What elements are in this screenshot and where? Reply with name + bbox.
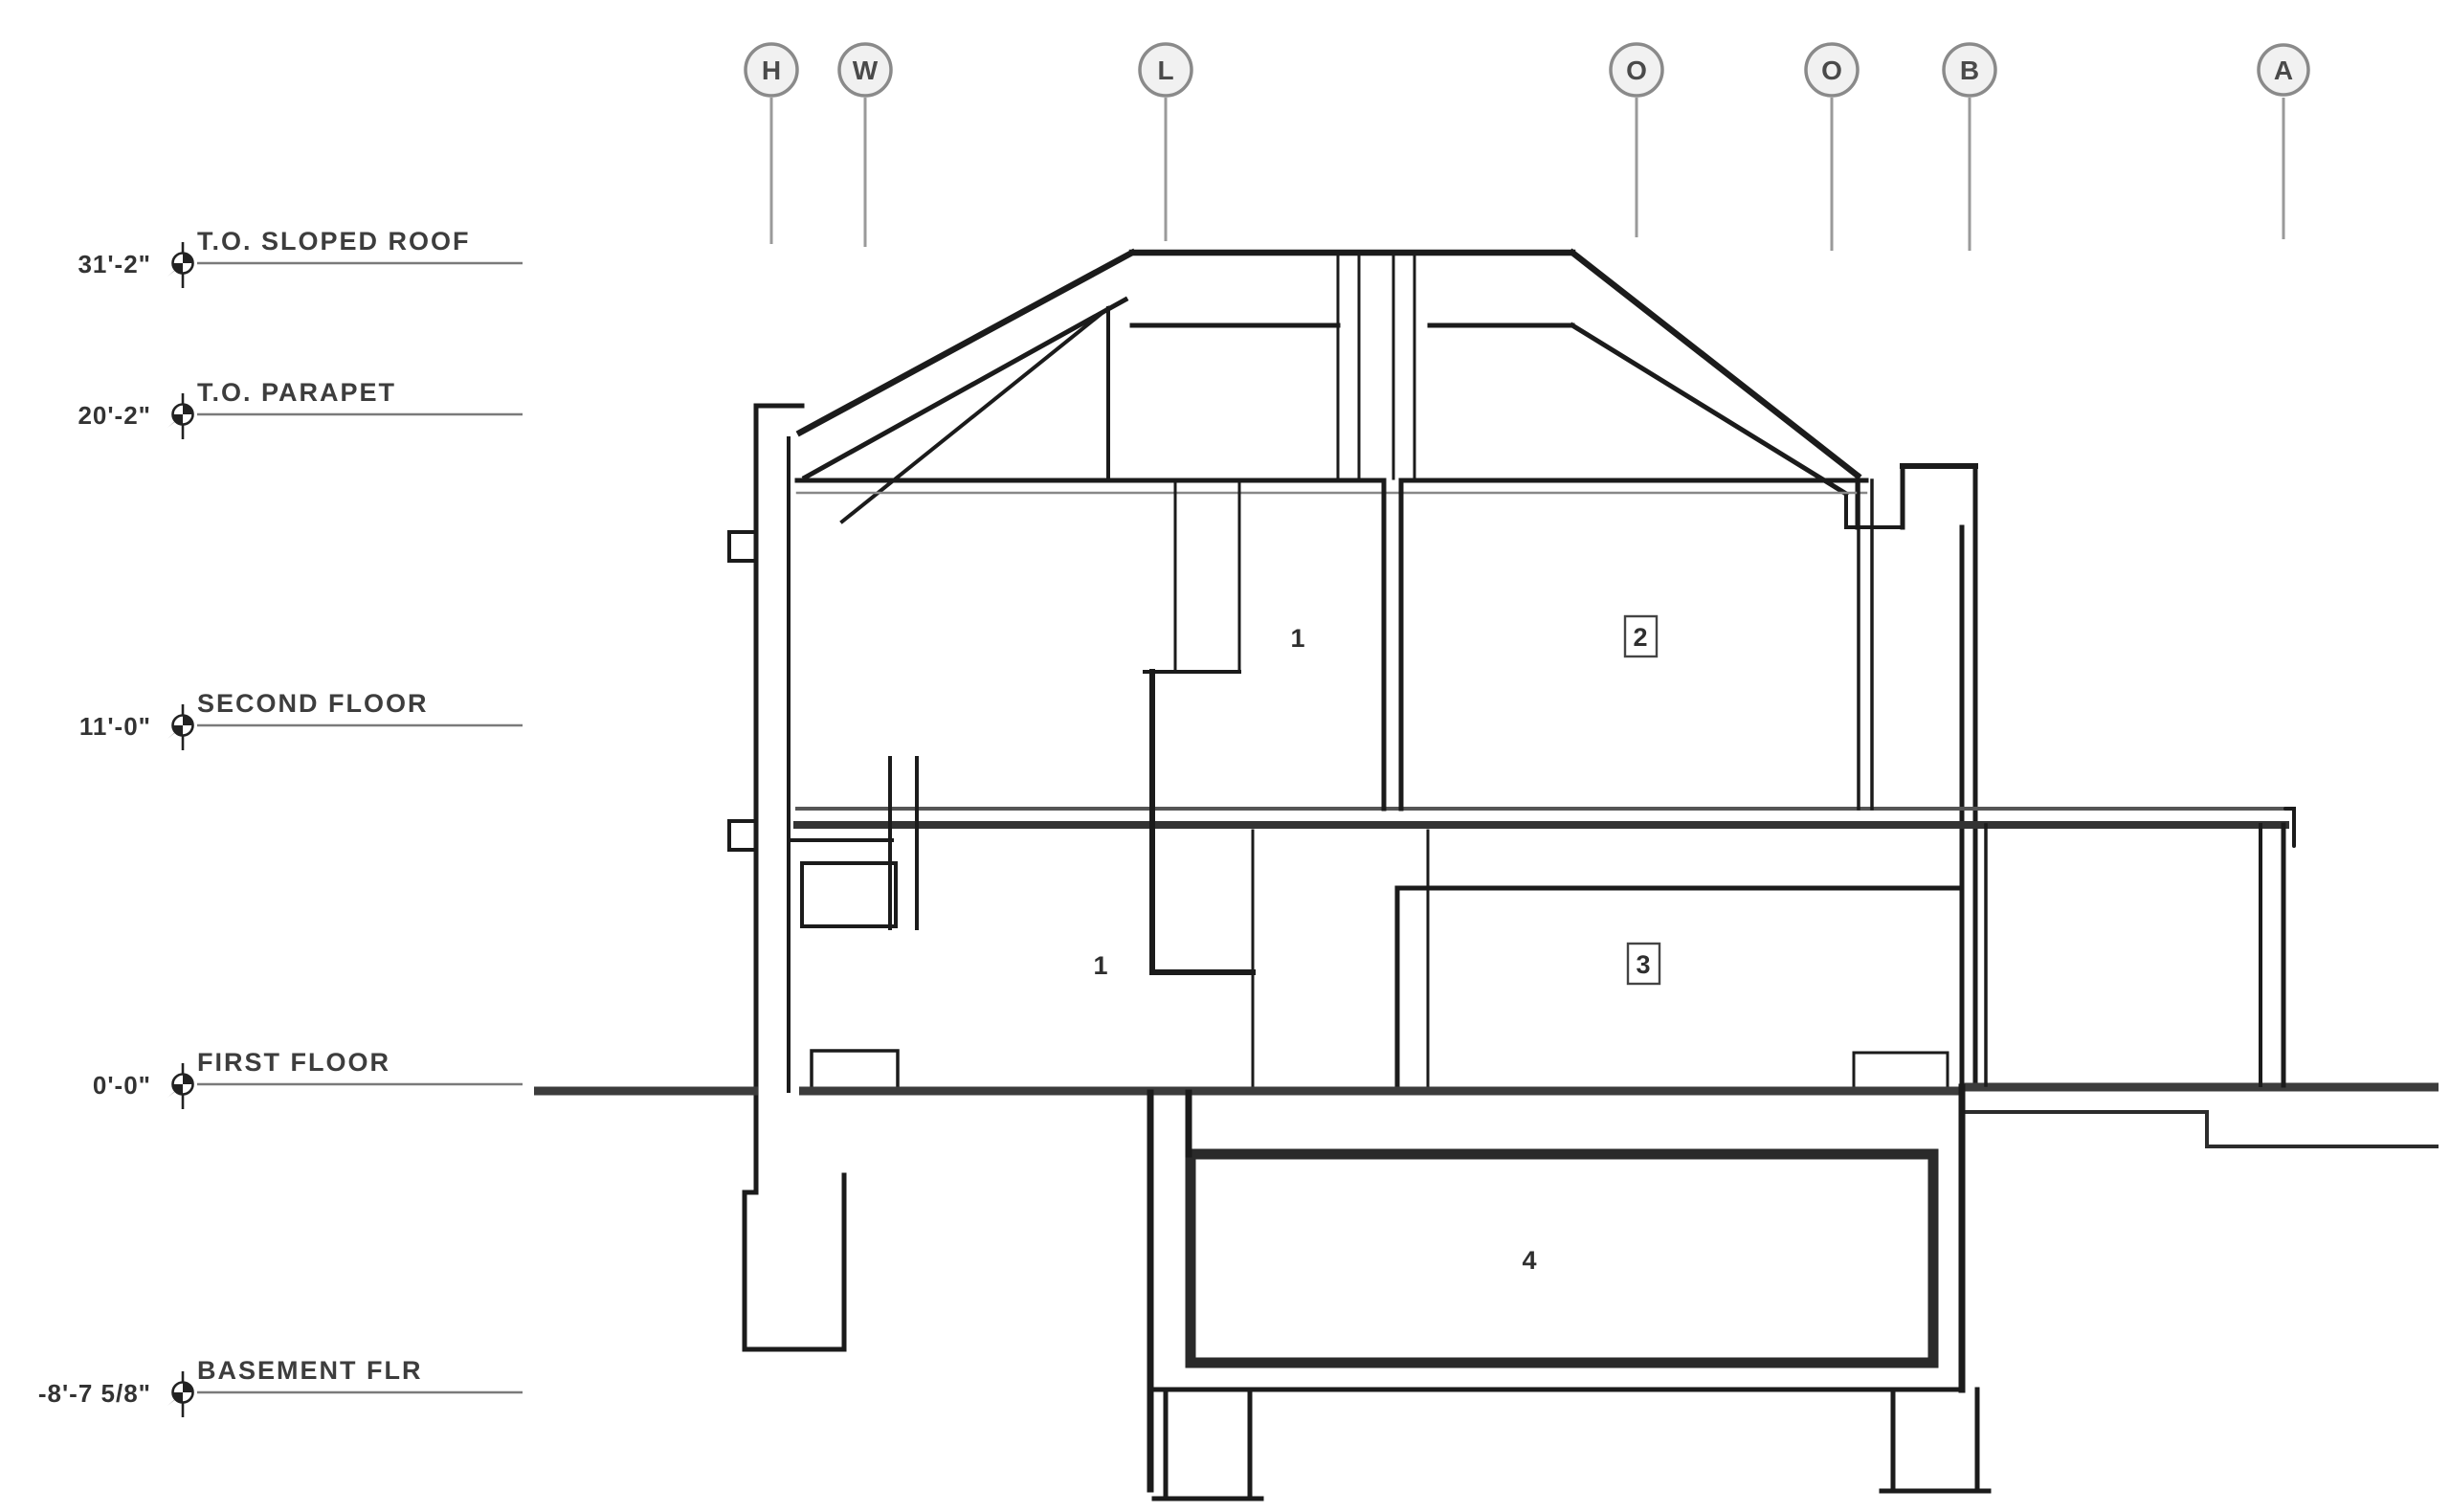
elevation-label: SECOND FLOOR	[197, 689, 429, 718]
floor-step	[1854, 1053, 1948, 1089]
footing-right	[1882, 1390, 1989, 1491]
room-divider-wall	[1384, 480, 1401, 809]
second-floor-band	[797, 809, 2294, 846]
room-tag-basement: 4	[1522, 1246, 1536, 1275]
svg-text:3: 3	[1636, 950, 1650, 979]
grid-bubble-label: B	[1960, 56, 1979, 85]
elevation-marker-second-floor: SECOND FLOOR 11'-0"	[79, 689, 523, 750]
grid-bubble-7: A	[2259, 45, 2308, 239]
stair-landing-box	[802, 863, 896, 926]
grid-bubble-label: O	[1626, 56, 1647, 85]
section-drawing-svg: H W L O O B A	[0, 0, 2450, 1512]
elevation-label: T.O. PARAPET	[197, 378, 396, 407]
footing-left	[1154, 1390, 1261, 1499]
elevation-label: FIRST FLOOR	[197, 1048, 390, 1077]
grade-and-slab	[534, 1087, 2439, 1146]
elevation-datum-icon	[167, 1371, 193, 1417]
left-exterior-wall	[729, 406, 844, 1349]
elevation-value: -8'-7 5/8"	[38, 1379, 151, 1408]
elevation-datum-icon	[167, 242, 193, 288]
elevation-marker-roof: T.O. SLOPED ROOF 31'-2"	[78, 227, 523, 288]
elevation-marker-parapet: T.O. PARAPET 20'-2"	[78, 378, 523, 439]
wall-ledge-lower	[729, 821, 756, 850]
elevation-value: 11'-0"	[79, 712, 151, 741]
roof	[800, 253, 1903, 527]
right-roof-slope	[1572, 253, 1858, 476]
elevation-value: 31'-2"	[78, 250, 151, 278]
right-foundation-line	[1964, 1112, 2439, 1146]
left-roof-slope	[800, 253, 1132, 433]
grid-bubble-label: O	[1821, 56, 1842, 85]
basement	[1150, 1087, 1989, 1499]
elevation-value: 20'-2"	[78, 401, 151, 430]
room-tags: 1 2 1 3 4	[1093, 616, 1659, 1275]
elevation-datum-icon	[167, 704, 193, 750]
grid-bubble-1: H	[746, 44, 797, 244]
right-parapet-and-wall	[1903, 466, 1975, 1087]
elevation-marker-first-floor: FIRST FLOOR 0'-0"	[93, 1048, 523, 1109]
architectural-section-sheet: H W L O O B A	[0, 0, 2450, 1512]
basement-room-walls	[1191, 1154, 1933, 1363]
grid-bubble-4: O	[1611, 44, 1662, 237]
building-section	[534, 253, 2439, 1499]
left-wall-footing	[745, 1175, 844, 1349]
grid-bubble-label: W	[853, 56, 879, 85]
second-floor-ceiling	[797, 480, 1866, 493]
grid-bubble-6: B	[1944, 44, 1995, 251]
upper-right-wall-face	[1859, 480, 1872, 809]
elevation-label: T.O. SLOPED ROOF	[197, 227, 471, 256]
roof-chimney-shaft	[1338, 256, 1414, 478]
elevation-marker-basement: BASEMENT FLR -8'-7 5/8"	[38, 1356, 523, 1417]
grid-bubble-2: W	[839, 44, 891, 247]
room-tag-upper-right: 2	[1625, 616, 1657, 656]
grid-bubble-label: L	[1157, 56, 1173, 85]
grid-bubble-3: L	[1140, 44, 1192, 241]
elevation-value: 0'-0"	[93, 1071, 151, 1100]
elevation-datum-icon	[167, 1063, 193, 1109]
room-tag-upper-left: 1	[1290, 624, 1304, 653]
first-floor-partitions	[1253, 831, 1962, 1089]
wall-ledge-upper	[729, 532, 756, 561]
room-tag-main-left: 1	[1093, 951, 1107, 980]
svg-text:2: 2	[1633, 623, 1647, 652]
grid-bubble-label: H	[762, 56, 781, 85]
elevation-label: BASEMENT FLR	[197, 1356, 423, 1385]
grid-bubbles: H W L O O B A	[746, 44, 2308, 251]
room-tag-main-right: 3	[1628, 944, 1659, 984]
grid-bubble-5: O	[1806, 44, 1858, 251]
garage	[1986, 825, 2283, 1085]
elevation-datum-icon	[167, 393, 193, 439]
elevation-markers: T.O. SLOPED ROOF 31'-2" T.O. PARAPET 20'…	[38, 227, 523, 1417]
grid-bubble-label: A	[2274, 56, 2293, 85]
closet-shaft	[1175, 480, 1239, 670]
